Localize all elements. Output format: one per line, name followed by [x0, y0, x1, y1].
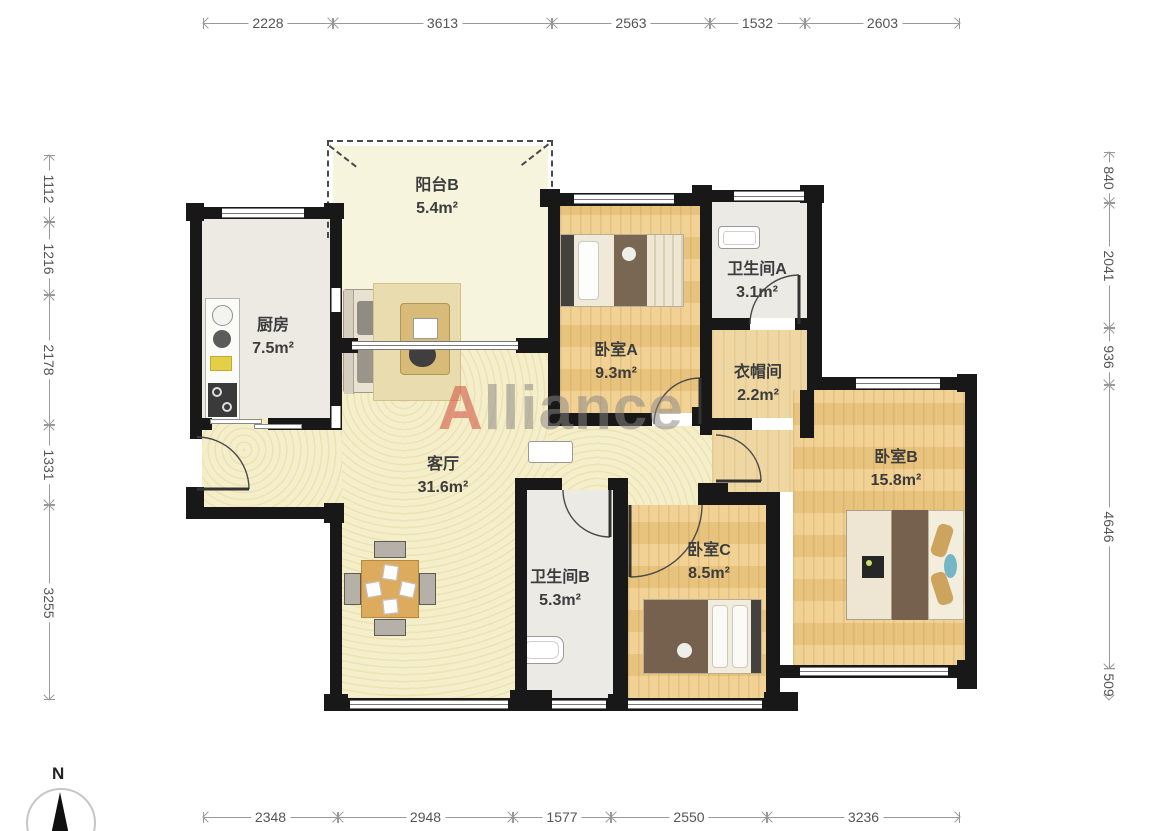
watermark: Alliance [438, 378, 684, 440]
room-name: 卧室B [836, 446, 956, 469]
door-arc-bathroom-b [563, 490, 610, 537]
dim-top-3: 1532 [710, 16, 805, 30]
dim-value: 2348 [251, 810, 290, 824]
room-area: 5.4m² [377, 197, 497, 220]
dim-left-0: 1112 [42, 155, 56, 222]
room-label-kitchen: 厨房 7.5m² [213, 314, 333, 360]
room-label-bathroom-a: 卫生间A 3.1m² [697, 258, 817, 304]
dim-left-4: 3255 [42, 505, 56, 700]
room-label-balcony-b: 阳台B 5.4m² [377, 174, 497, 220]
room-name: 衣帽间 [698, 361, 818, 384]
dim-value: 2603 [863, 16, 902, 30]
watermark-rest: lliance [484, 374, 684, 443]
dim-top-0: 2228 [203, 16, 333, 30]
room-name: 厨房 [213, 314, 333, 337]
dim-value: 2563 [611, 16, 650, 30]
dim-value: 1112 [42, 170, 56, 207]
dim-value: 2228 [248, 16, 287, 30]
room-label-living: 客厅 31.6m² [383, 453, 503, 499]
watermark-first-letter: A [438, 374, 484, 443]
floor-plan-canvas: 阳台B 5.4m² 厨房 7.5m² 客厅 31.6m² 卧室A 9.3m² 卫… [0, 0, 1170, 831]
dim-bottom-0: 2348 [203, 810, 338, 824]
dim-top-2: 2563 [552, 16, 710, 30]
room-name: 客厅 [383, 453, 503, 476]
dim-left-3: 1331 [42, 425, 56, 505]
door-arc-entry [197, 437, 249, 489]
dim-value: 2948 [406, 810, 445, 824]
room-area: 8.5m² [649, 562, 769, 585]
compass: N [12, 762, 106, 831]
dim-bottom-1: 2948 [338, 810, 513, 824]
door-arc-corridor [716, 435, 761, 481]
room-area: 2.2m² [698, 384, 818, 407]
dim-top-4: 2603 [805, 16, 960, 30]
room-label-bedroom-c: 卧室C 8.5m² [649, 539, 769, 585]
room-label-closet: 衣帽间 2.2m² [698, 361, 818, 407]
room-area: 5.3m² [500, 589, 620, 612]
room-name: 阳台B [377, 174, 497, 197]
dim-left-1: 1216 [42, 222, 56, 295]
room-label-bedroom-b: 卧室B 15.8m² [836, 446, 956, 492]
room-name: 卫生间B [500, 566, 620, 589]
dim-bottom-4: 3236 [767, 810, 960, 824]
dim-value: 509 [1102, 669, 1116, 700]
room-area: 3.1m² [697, 281, 817, 304]
room-area: 15.8m² [836, 469, 956, 492]
dim-value: 1577 [542, 810, 581, 824]
dim-bottom-2: 1577 [513, 810, 611, 824]
dim-value: 2178 [42, 340, 56, 379]
dim-value: 2550 [669, 810, 708, 824]
dim-right-4: 509 [1102, 669, 1116, 700]
dim-value: 840 [1102, 162, 1116, 193]
dim-right-0: 840 [1102, 152, 1116, 203]
dim-value: 1331 [42, 445, 56, 484]
dim-value: 2041 [1102, 246, 1116, 285]
compass-north-label: N [52, 764, 64, 784]
room-area: 7.5m² [213, 337, 333, 360]
dim-bottom-3: 2550 [611, 810, 767, 824]
dim-left-2: 2178 [42, 295, 56, 425]
room-name: 卫生间A [697, 258, 817, 281]
dim-value: 3613 [423, 16, 462, 30]
dim-value: 3255 [42, 583, 56, 622]
dim-value: 1532 [738, 16, 777, 30]
dim-right-3: 4646 [1102, 385, 1116, 669]
dim-value: 4646 [1102, 507, 1116, 546]
dim-value: 3236 [844, 810, 883, 824]
dim-value: 1216 [42, 239, 56, 278]
room-name: 卧室A [556, 339, 676, 362]
room-area: 31.6m² [383, 476, 503, 499]
dim-right-1: 2041 [1102, 203, 1116, 328]
dim-right-2: 936 [1102, 328, 1116, 385]
room-label-bathroom-b: 卫生间B 5.3m² [500, 566, 620, 612]
dim-top-1: 3613 [333, 16, 552, 30]
room-name: 卧室C [649, 539, 769, 562]
dim-value: 936 [1102, 341, 1116, 372]
